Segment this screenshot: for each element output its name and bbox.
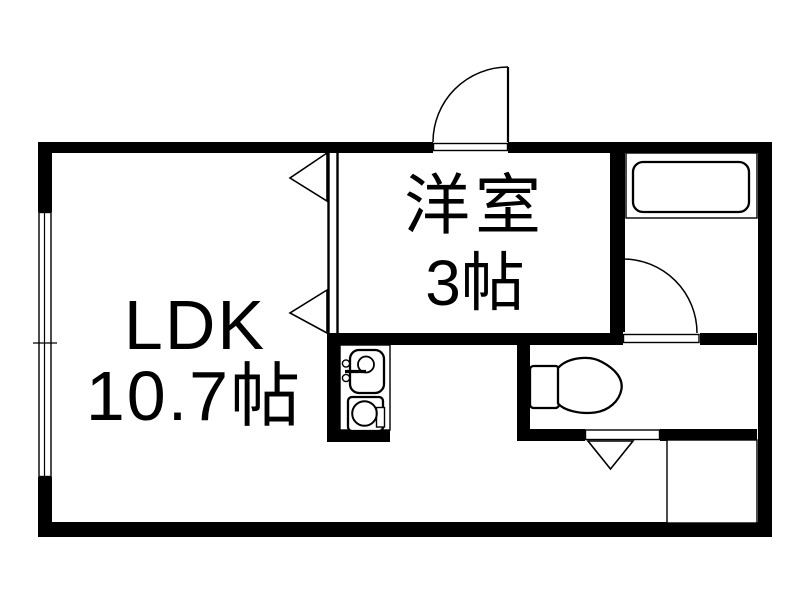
entrance-area-outline — [667, 440, 757, 523]
wall-outer-bottom — [38, 522, 772, 537]
door-sill-bathroom — [624, 335, 700, 343]
floorplan: LDK 10.7帖 洋室 3帖 — [0, 0, 800, 600]
room-label-ldk-size: 10.7帖 — [86, 361, 302, 431]
door-sill-toilet — [586, 430, 660, 440]
floorplan-drawing — [0, 0, 800, 600]
room-label-western-room-size: 3帖 — [425, 251, 525, 315]
stove-burner-icon — [348, 397, 385, 431]
wall-westernroom-bathroom — [610, 142, 625, 345]
wall-toilet-left — [517, 345, 530, 430]
bathtub-icon — [626, 153, 757, 218]
wall-outer-top — [38, 142, 772, 153]
toilet-icon — [530, 358, 622, 413]
kitchen-unit — [340, 345, 390, 431]
wall-outer-right — [758, 142, 772, 537]
wall-kitchen-left — [327, 333, 340, 442]
door-sill-top — [434, 144, 508, 151]
room-label-western-room-name: 洋室 — [404, 172, 546, 238]
room-label-ldk-name: LDK — [124, 290, 266, 360]
